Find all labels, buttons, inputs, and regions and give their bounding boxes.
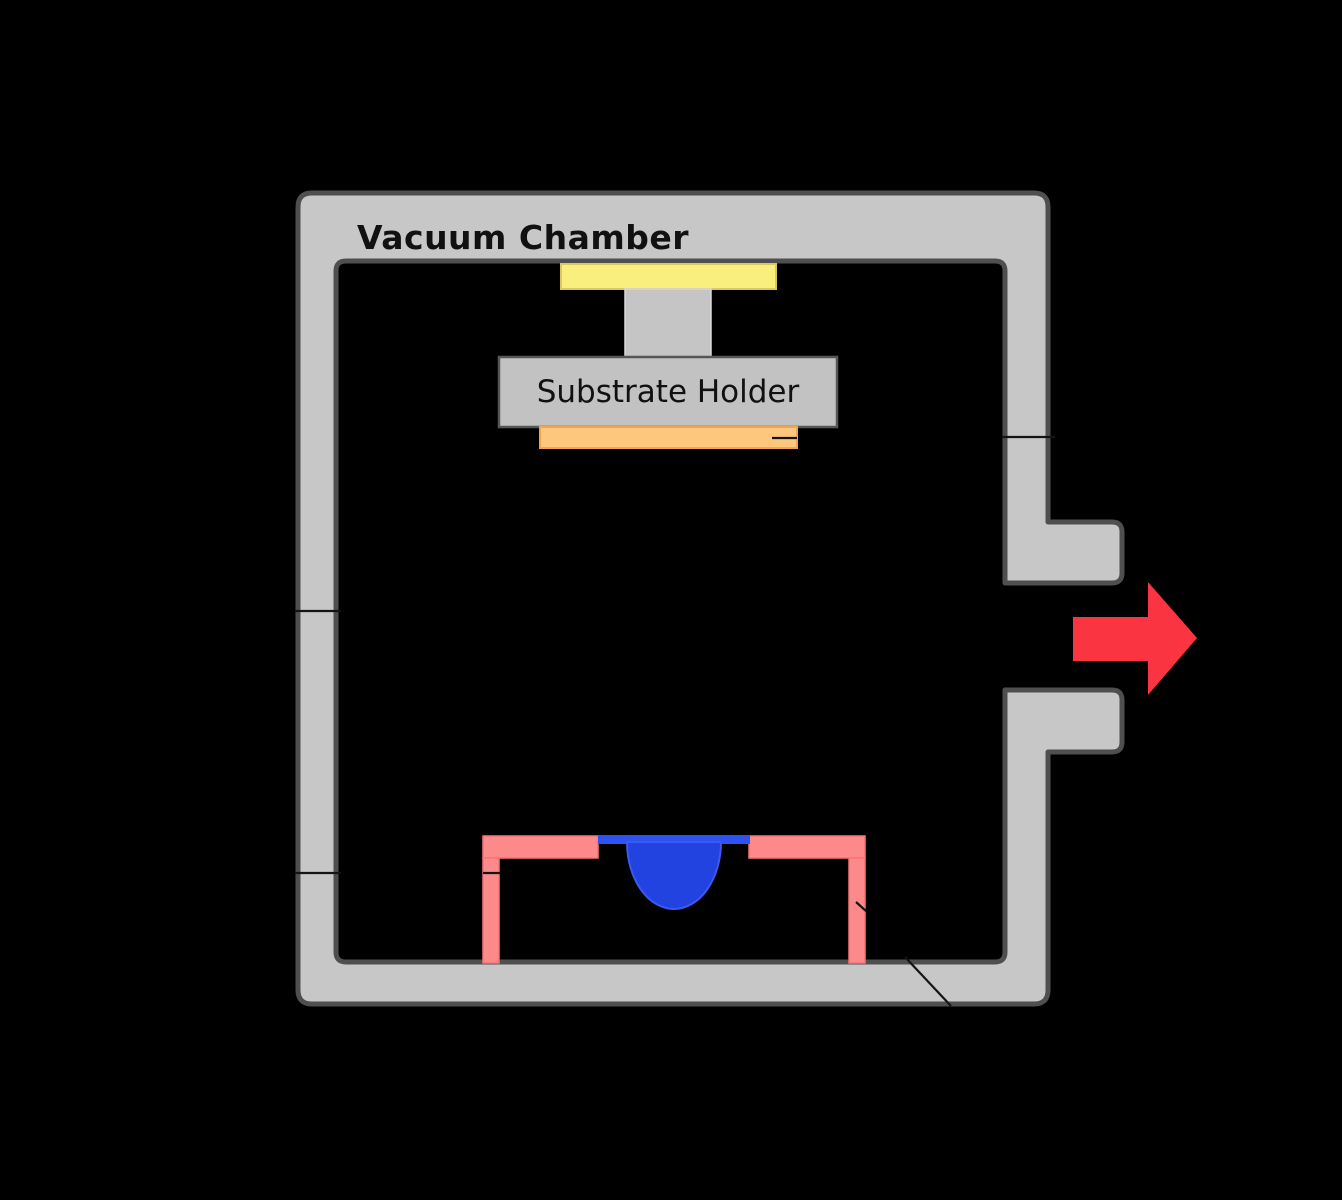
chamber-title-label: Vacuum Chamber bbox=[357, 218, 689, 257]
pump-arrow-icon bbox=[1073, 582, 1197, 695]
leader-lines bbox=[295, 437, 1055, 1006]
heater-plate bbox=[561, 264, 776, 289]
diagram-canvas bbox=[0, 0, 1342, 1200]
boat-left-arm bbox=[483, 836, 598, 858]
boat-right-arm bbox=[749, 836, 865, 858]
boat-right-leg bbox=[849, 858, 865, 963]
vacuum-deposition-diagram: Vacuum Chamber Substrate Holder bbox=[0, 0, 1342, 1200]
holder-stem bbox=[625, 289, 711, 357]
substrate-holder-label: Substrate Holder bbox=[499, 357, 837, 427]
substrate-plate bbox=[540, 427, 797, 448]
melt-drop bbox=[627, 842, 721, 909]
